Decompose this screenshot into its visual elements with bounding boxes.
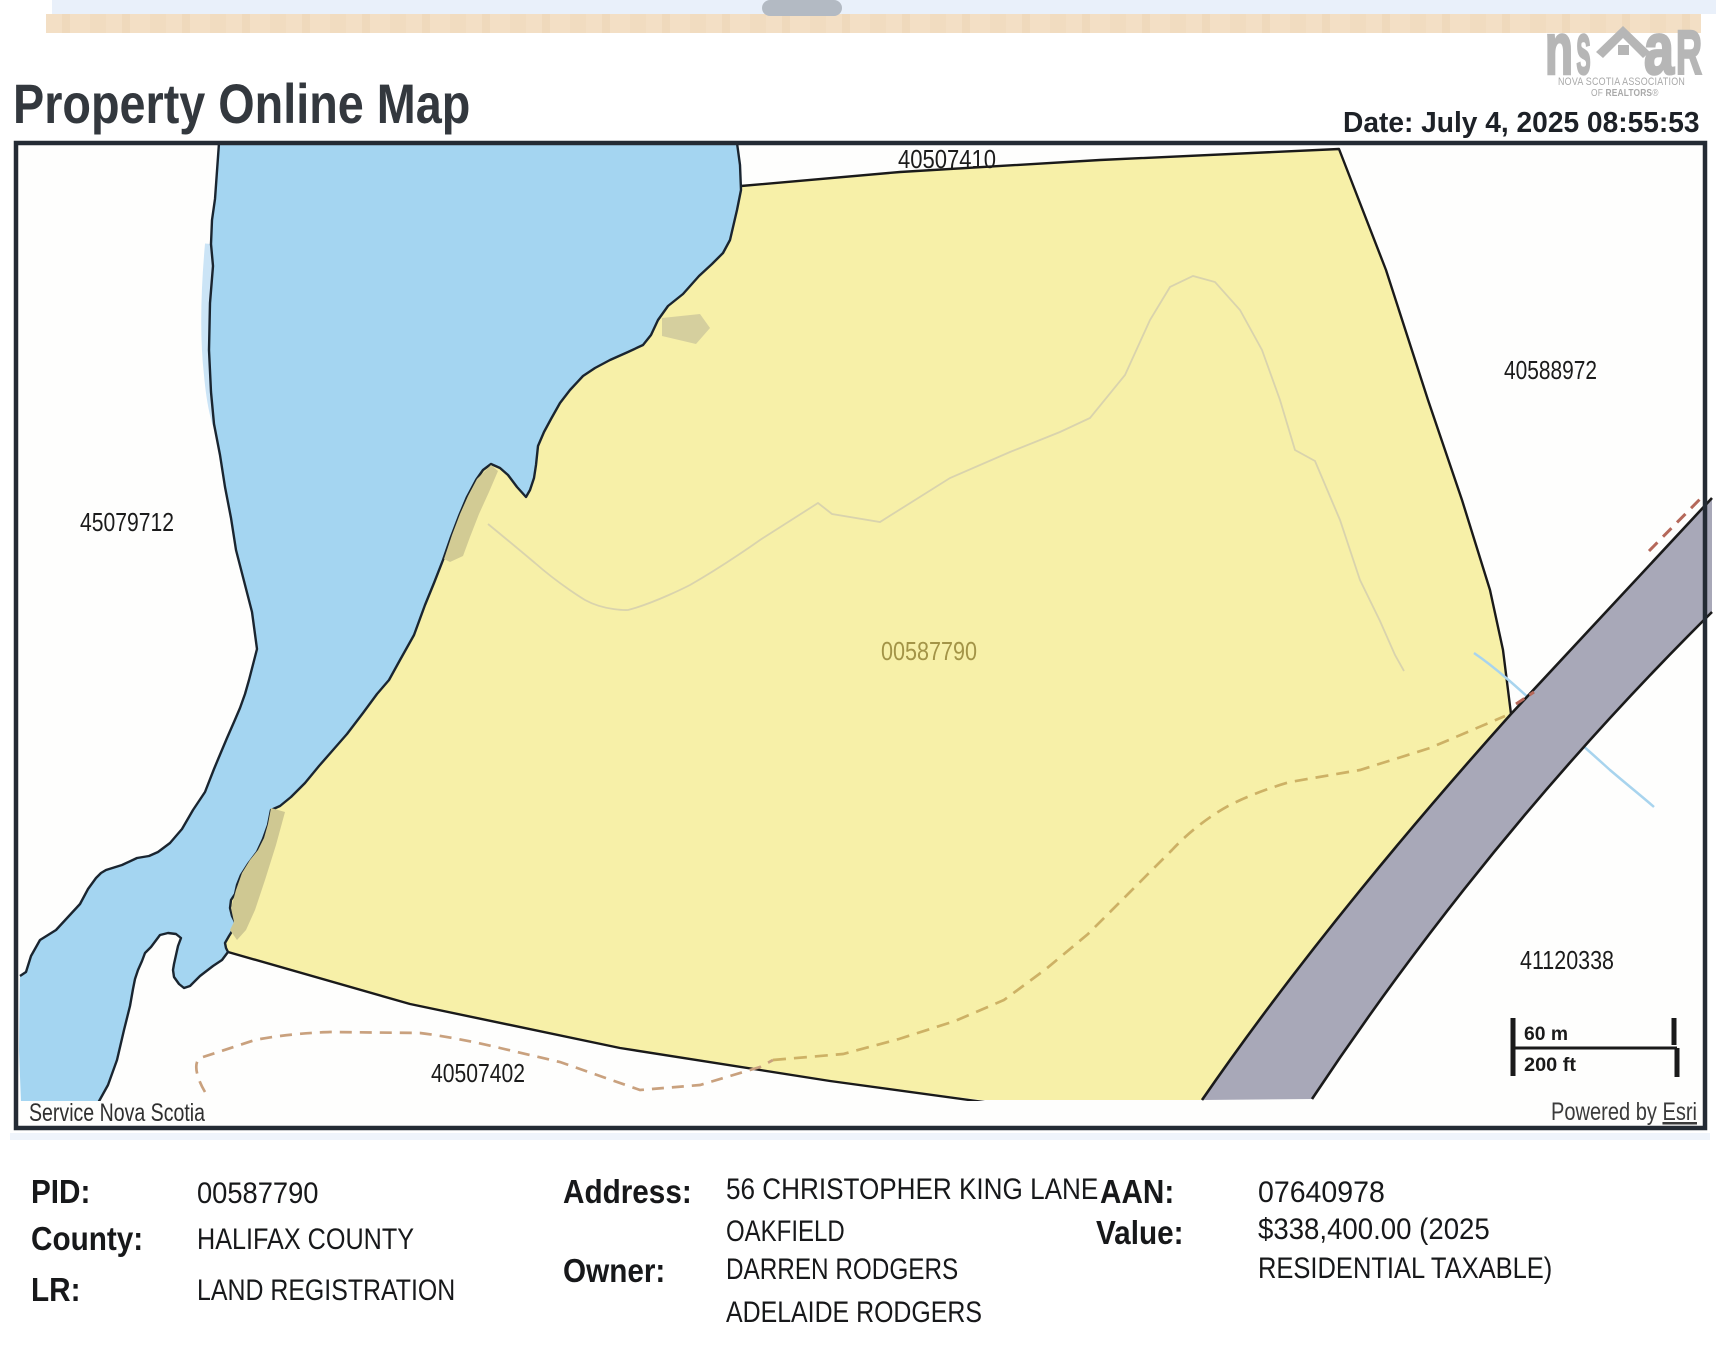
svg-text:Service Nova Scotia: Service Nova Scotia xyxy=(29,1099,205,1127)
svg-text:41120338: 41120338 xyxy=(1520,945,1614,975)
svg-text:40507410: 40507410 xyxy=(898,144,996,174)
svg-text:60 m: 60 m xyxy=(1524,1024,1568,1045)
svg-text:40588972: 40588972 xyxy=(1504,355,1597,385)
svg-text:40507402: 40507402 xyxy=(431,1058,525,1088)
svg-text:45079712: 45079712 xyxy=(80,507,174,537)
svg-text:200 ft: 200 ft xyxy=(1524,1055,1577,1076)
svg-text:Powered by Esri: Powered by Esri xyxy=(1551,1098,1697,1126)
svg-text:00587790: 00587790 xyxy=(881,636,977,666)
